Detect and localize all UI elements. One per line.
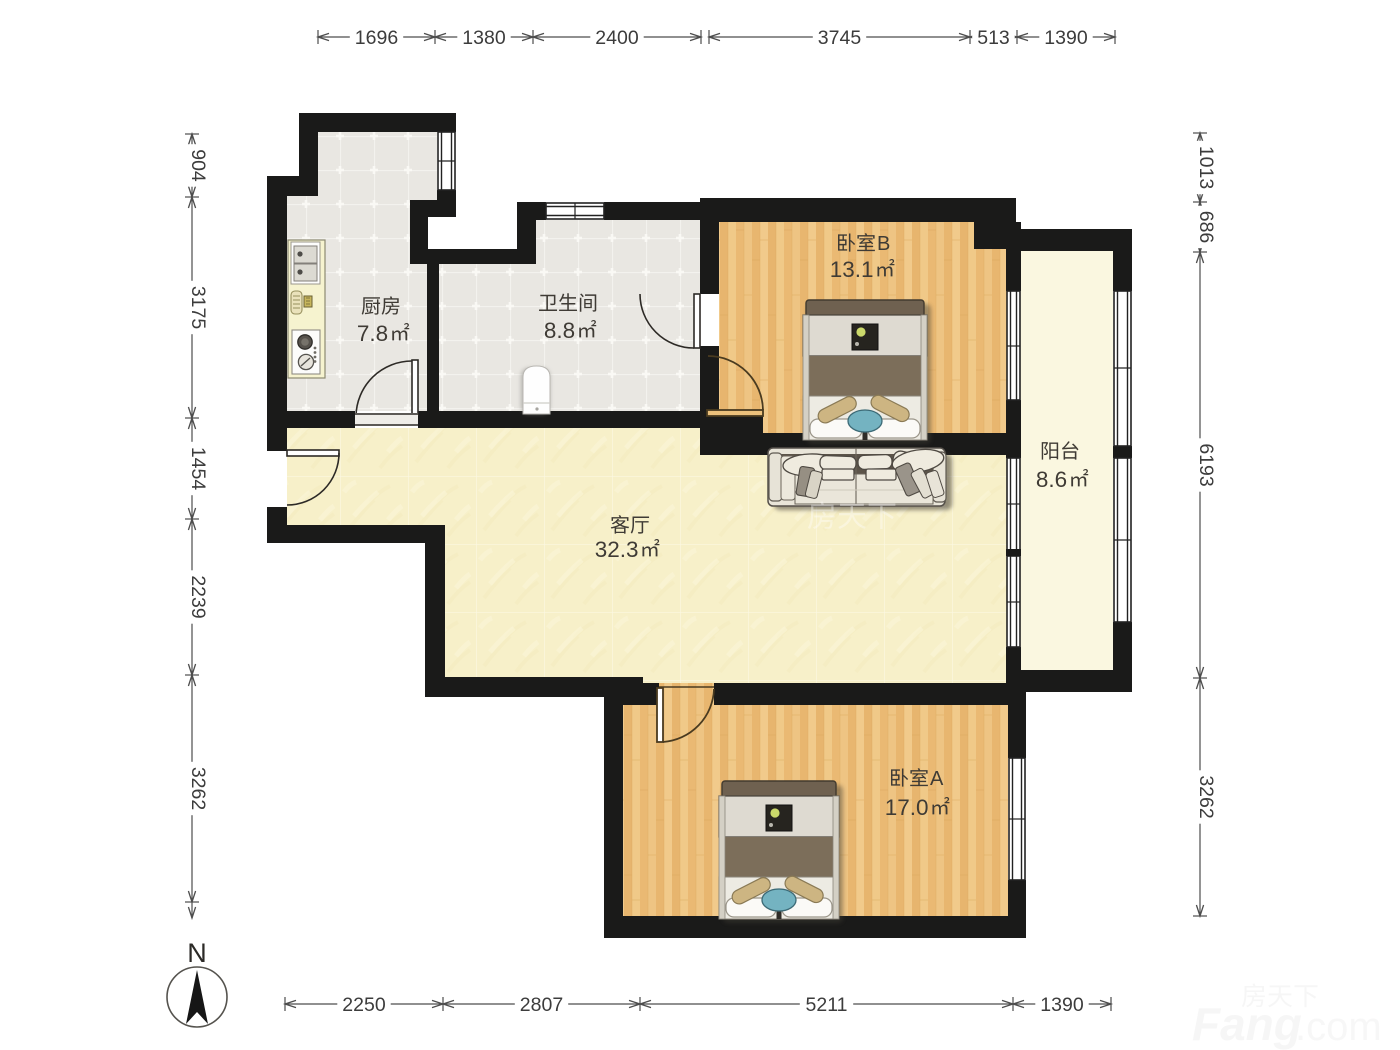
svg-text:1696: 1696 — [355, 27, 398, 49]
svg-text:7.8: 7.8 — [357, 321, 388, 346]
svg-text:2807: 2807 — [520, 994, 563, 1016]
svg-text:1013: 1013 — [1195, 146, 1217, 189]
svg-text:3175: 3175 — [187, 286, 209, 330]
svg-text:B: B — [877, 233, 890, 255]
svg-text:1380: 1380 — [462, 27, 506, 49]
svg-text:5211: 5211 — [806, 994, 848, 1016]
svg-text:Fang: Fang — [1192, 998, 1302, 1050]
svg-text:686: 686 — [1195, 211, 1217, 244]
svg-text:513: 513 — [977, 27, 1010, 49]
svg-text:.com: .com — [1295, 1005, 1382, 1049]
svg-text:2239: 2239 — [187, 575, 209, 618]
svg-text:32.3: 32.3 — [595, 537, 639, 562]
svg-text:13.1: 13.1 — [830, 257, 874, 282]
svg-text:N: N — [187, 938, 207, 968]
svg-text:17.0: 17.0 — [885, 795, 929, 820]
svg-text:1454: 1454 — [187, 447, 209, 491]
svg-text:A: A — [930, 768, 944, 790]
svg-text:6193: 6193 — [1195, 443, 1217, 486]
svg-text:3262: 3262 — [187, 767, 209, 810]
svg-text:8.8: 8.8 — [544, 318, 575, 343]
svg-text:8.6: 8.6 — [1036, 467, 1067, 492]
svg-text:1390: 1390 — [1044, 27, 1088, 49]
svg-text:2250: 2250 — [342, 994, 386, 1016]
svg-text:904: 904 — [187, 149, 209, 182]
svg-text:3262: 3262 — [1195, 775, 1217, 818]
svg-text:1390: 1390 — [1040, 994, 1084, 1016]
svg-text:3745: 3745 — [818, 27, 862, 49]
svg-text:2400: 2400 — [595, 27, 639, 49]
